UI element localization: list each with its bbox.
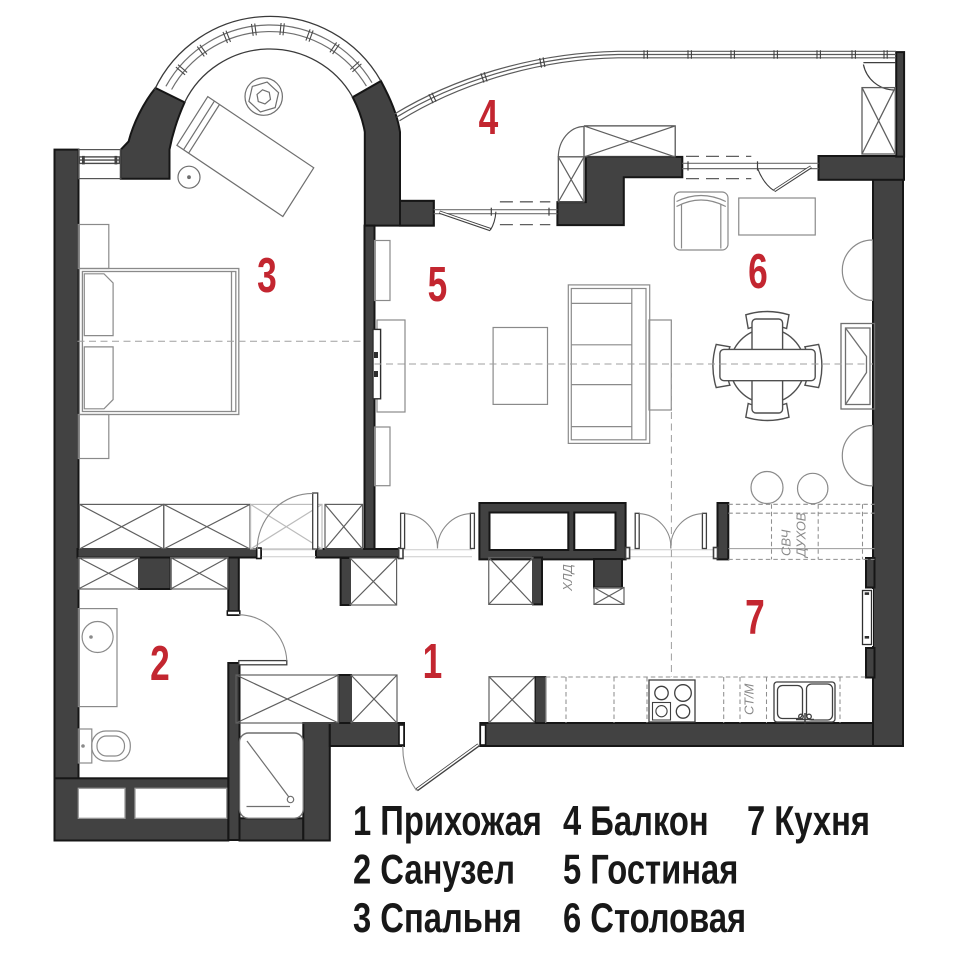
svg-text:4: 4 xyxy=(479,90,499,145)
svg-text:1: 1 xyxy=(423,634,443,689)
svg-text:5 Гостиная: 5 Гостиная xyxy=(563,846,738,893)
svg-text:ДУХОВ: ДУХОВ xyxy=(794,512,809,559)
svg-text:3 Спальня: 3 Спальня xyxy=(353,894,522,941)
svg-text:СТ/М: СТ/М xyxy=(742,683,757,715)
svg-text:2: 2 xyxy=(150,636,170,691)
svg-text:1 Прихожая: 1 Прихожая xyxy=(353,797,542,844)
svg-text:СВЧ: СВЧ xyxy=(779,529,794,556)
svg-text:6 Столовая: 6 Столовая xyxy=(563,894,746,941)
svg-text:7 Кухня: 7 Кухня xyxy=(747,797,870,844)
svg-text:5: 5 xyxy=(428,257,448,312)
svg-text:3: 3 xyxy=(257,248,277,303)
svg-text:ХЛД: ХЛД xyxy=(560,564,575,592)
svg-text:7: 7 xyxy=(745,590,765,645)
svg-text:2 Санузел: 2 Санузел xyxy=(353,846,515,893)
svg-text:6: 6 xyxy=(748,244,768,299)
svg-text:4 Балкон: 4 Балкон xyxy=(563,797,709,844)
